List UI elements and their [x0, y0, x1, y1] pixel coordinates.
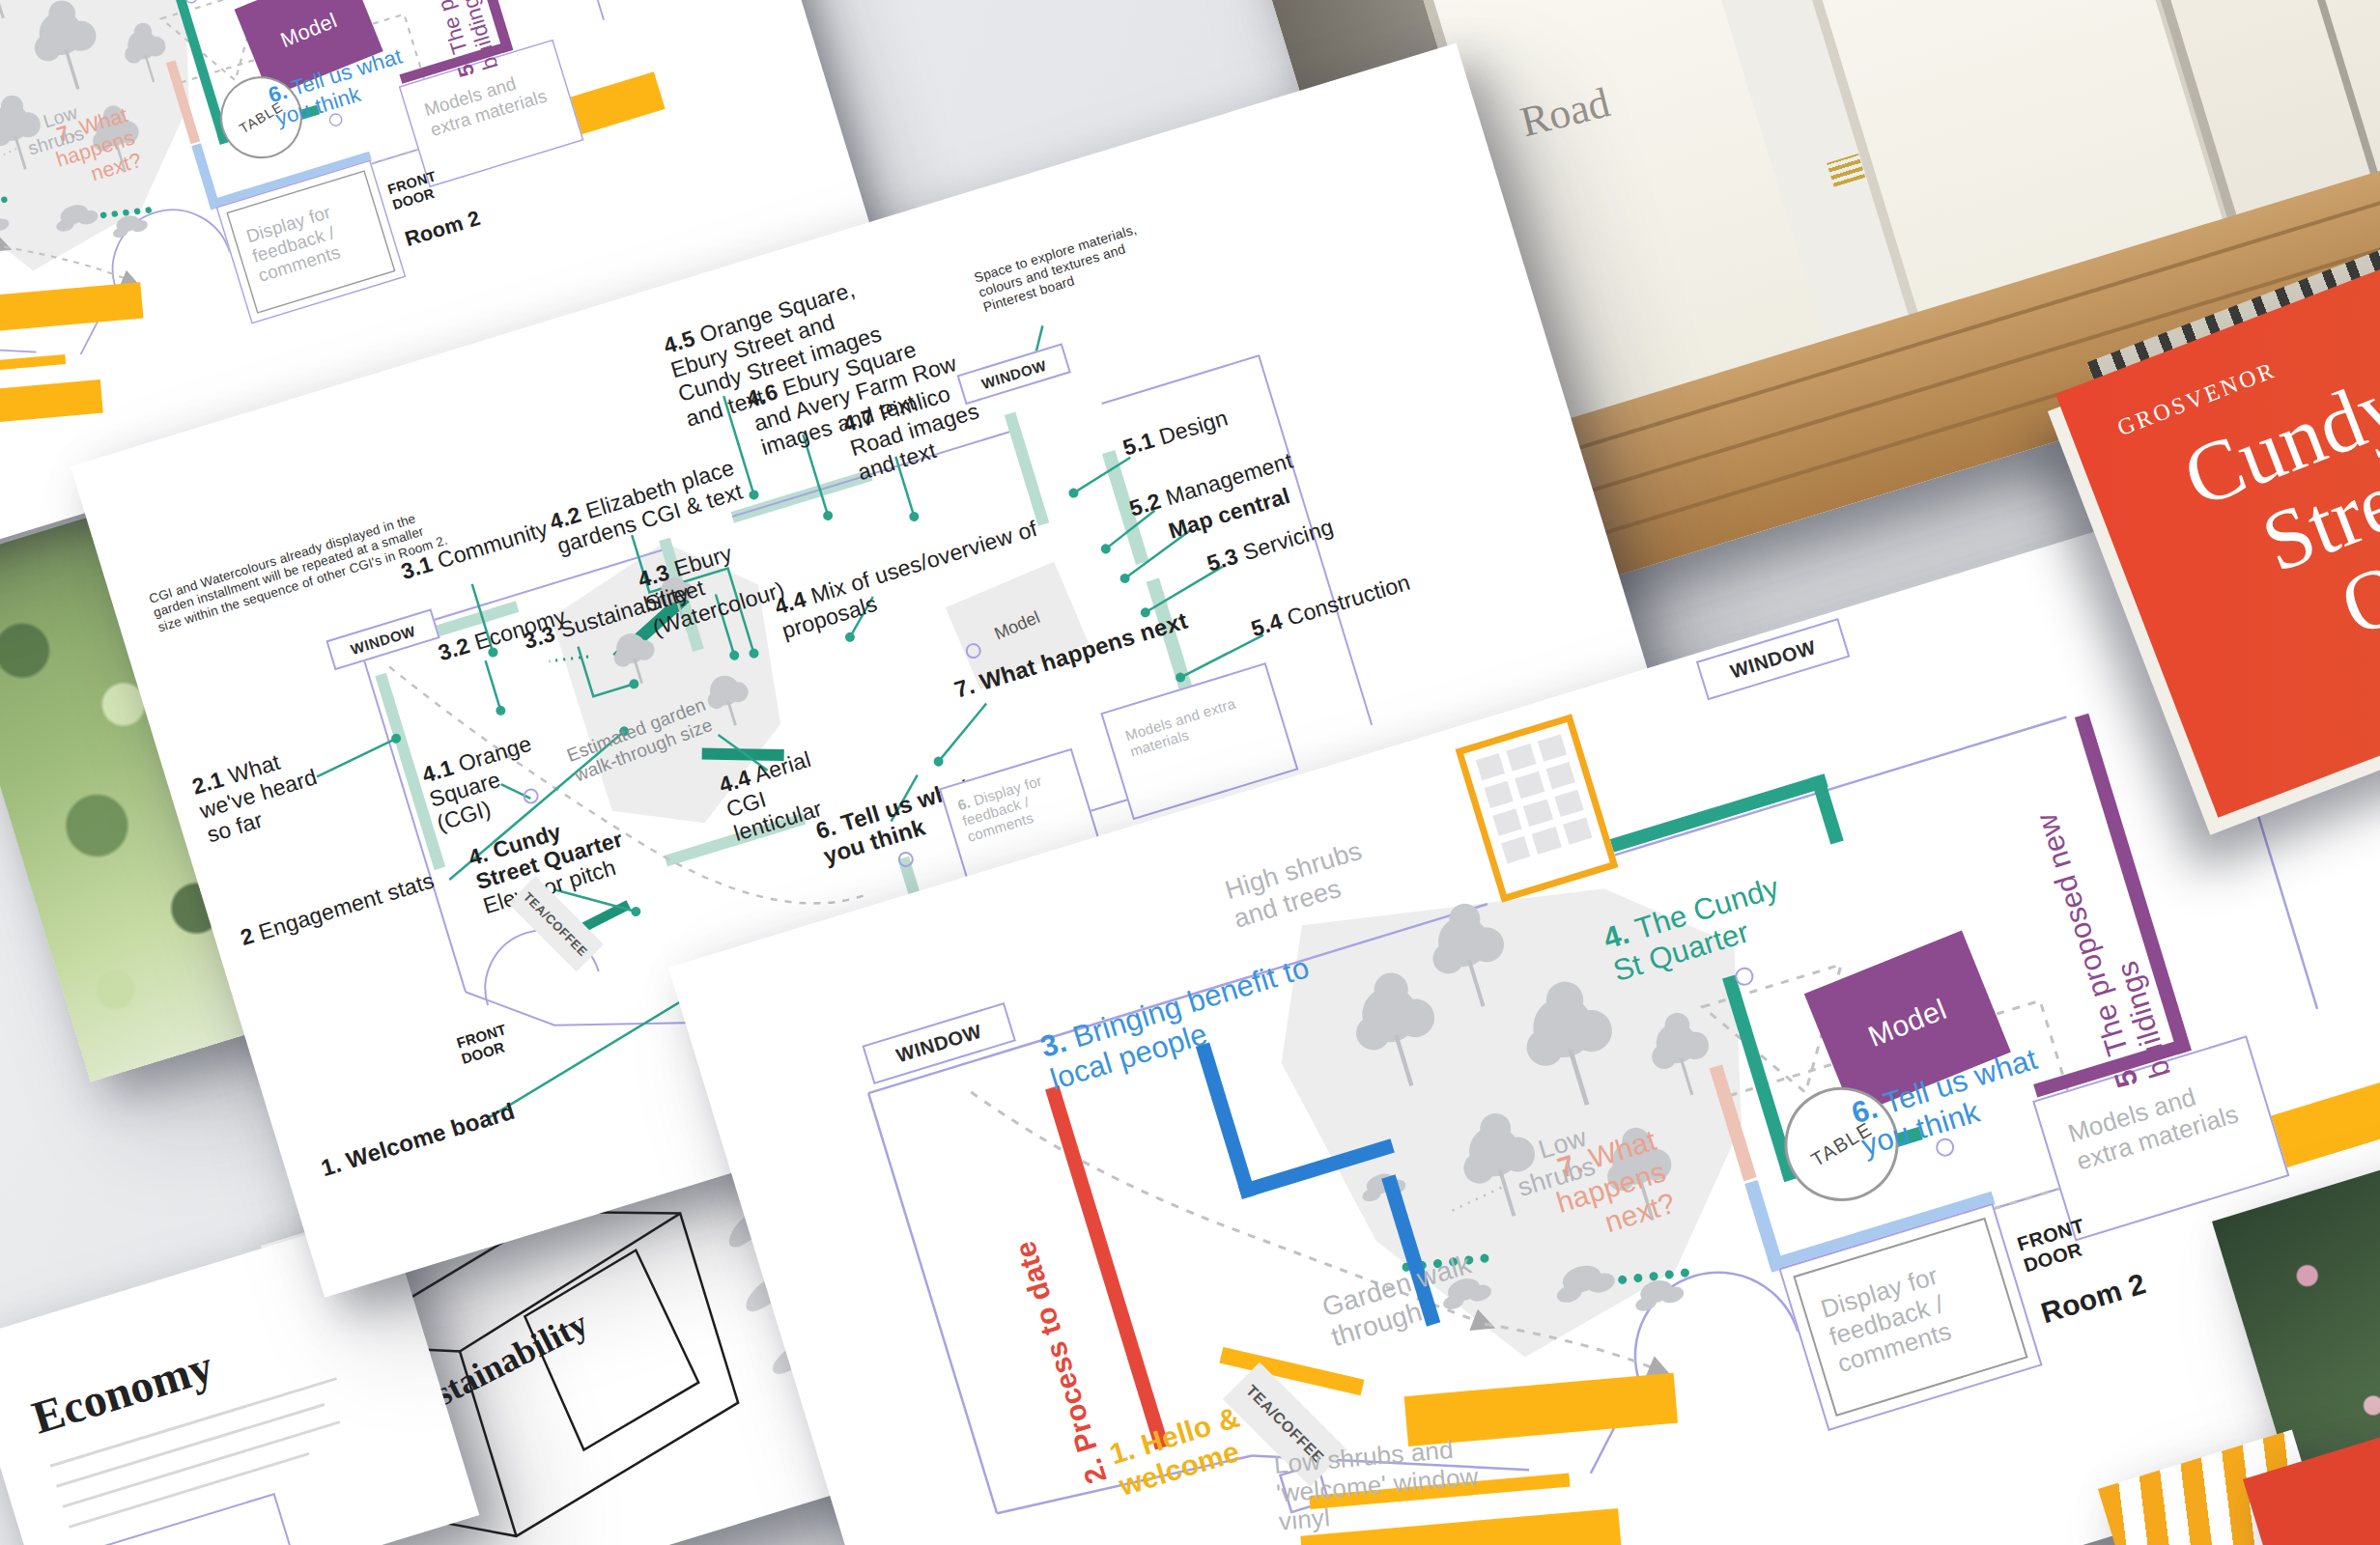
- image-placeholder-box: [77, 1493, 296, 1545]
- display-feedback-label: Display for feedback / comments: [1818, 1249, 2000, 1379]
- models-extra-label: Models and extra materials: [2065, 1071, 2248, 1176]
- display-feedback-label: 6. Display for feedback / comments: [955, 765, 1076, 845]
- moodboard-scene: { "room2_plan": { "window_top": "WINDOW"…: [0, 0, 2380, 1545]
- models-extra-label: Models and extra materials: [422, 65, 553, 141]
- models-extra-label: Models and extra materials: [1123, 691, 1253, 760]
- booklet-title-economy: Economy: [26, 1339, 219, 1445]
- display-feedback-label: Display for feedback / comments: [244, 193, 376, 287]
- text-line: [63, 1420, 341, 1508]
